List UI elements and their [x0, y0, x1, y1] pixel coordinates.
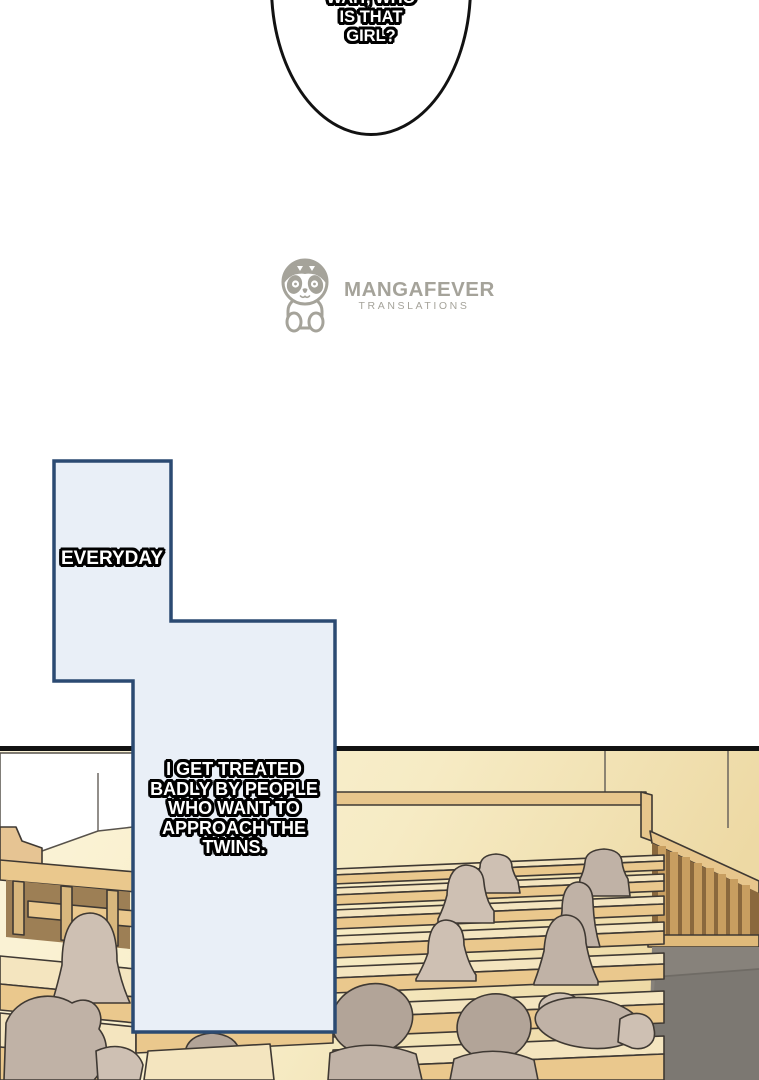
- narration-line: APPROACH THE: [130, 819, 338, 839]
- sloth-mascot-icon: [273, 256, 337, 334]
- caption-box: [50, 457, 340, 1037]
- narration-line: TWINS.: [130, 838, 338, 858]
- caption-everyday: EVERYDAY: [32, 548, 192, 569]
- speech-bubble-line: IS THAT: [251, 8, 491, 27]
- speech-bubble-line: GIRL?: [251, 27, 491, 46]
- desk-row: [144, 1044, 274, 1080]
- narration-line: WHO WANT TO: [130, 799, 338, 819]
- speech-bubble-line: WAIT, WHO: [251, 0, 491, 8]
- manga-page: WAIT, WHO IS THAT GIRL? MANGAFEV: [0, 0, 759, 1080]
- narration-line: BADLY BY PEOPLE: [130, 780, 338, 800]
- caption-narration: I GET TREATED BADLY BY PEOPLE WHO WANT T…: [130, 760, 338, 858]
- speech-bubble-top: WAIT, WHO IS THAT GIRL?: [270, 0, 472, 136]
- speech-bubble-top-text: WAIT, WHO IS THAT GIRL?: [251, 0, 491, 46]
- brand-name: MANGAFEVER: [344, 278, 494, 302]
- brand-subtitle: TRANSLATIONS: [344, 300, 484, 312]
- translator-watermark: MANGAFEVER TRANSLATIONS: [273, 256, 337, 334]
- narration-line: I GET TREATED: [130, 760, 338, 780]
- student-silhouette: [618, 1014, 654, 1049]
